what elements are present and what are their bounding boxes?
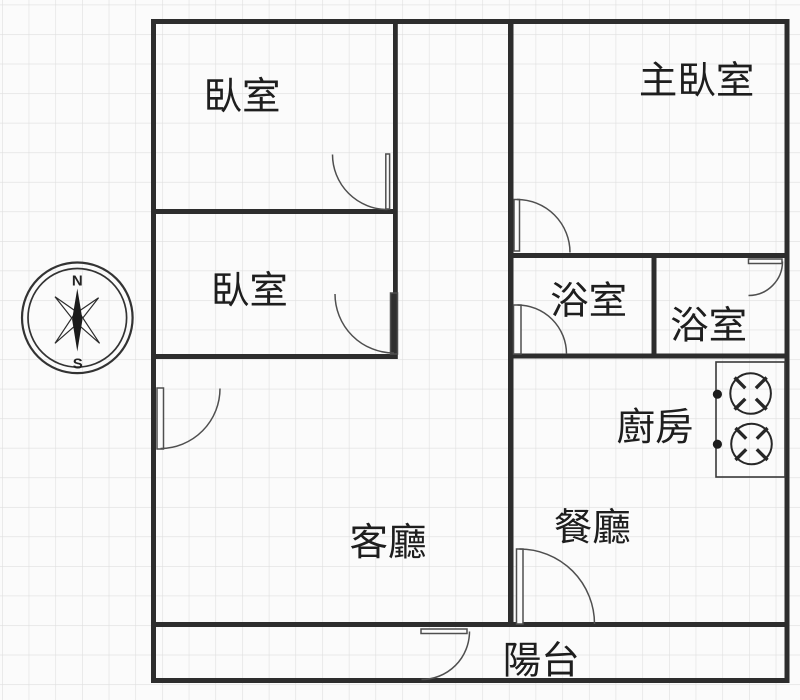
svg-text:S: S (73, 356, 83, 373)
svg-text:N: N (72, 273, 83, 290)
